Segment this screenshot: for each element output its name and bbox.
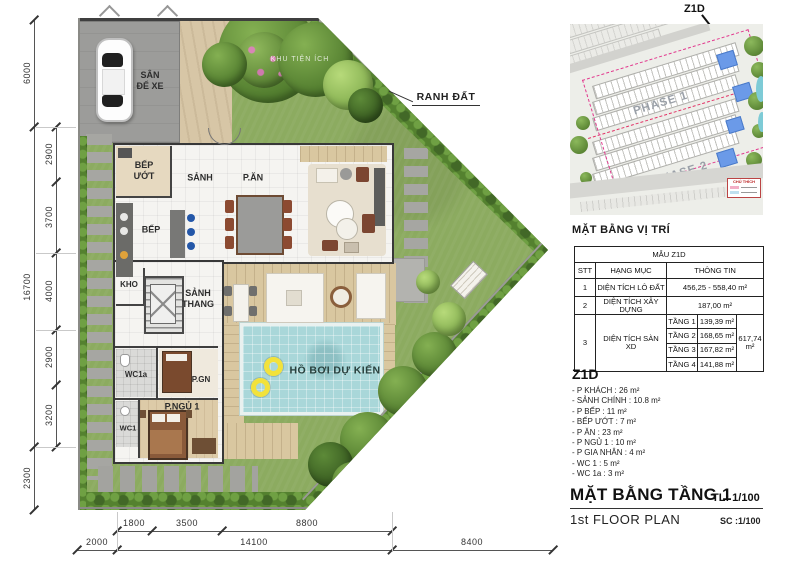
kitchen-label: BẾP	[142, 225, 161, 236]
dining-label: P.ĂN	[243, 173, 263, 184]
spec-table-header-row: STT HẠNG MỤC THÔNG TIN	[575, 262, 763, 278]
elevator-shaft	[150, 284, 176, 324]
tv-cabinet	[374, 168, 385, 226]
dim-extension	[36, 330, 76, 331]
title-divider	[570, 508, 763, 509]
wet-kitchen-label: BẾP ƯỚT	[134, 160, 155, 182]
dim-line-left-inner	[56, 127, 57, 447]
legend-item: - BẾP ƯỚT : 7 m²	[572, 417, 660, 427]
dim-line-left-outer	[34, 20, 35, 510]
lounge-chair	[362, 214, 375, 233]
tree	[432, 302, 466, 336]
dim-value: 2000	[86, 537, 108, 547]
dim-value: 8400	[461, 537, 483, 547]
toilet	[120, 354, 130, 367]
sofa	[316, 168, 338, 183]
dim-value: 16700	[22, 273, 32, 301]
car-roof	[102, 69, 125, 95]
legend-swatch-line	[741, 192, 757, 193]
spec-table-title: MẪU Z1D	[575, 247, 763, 262]
legend-item: - P BẾP : 11 m²	[572, 407, 660, 417]
pool-label: HỒ BƠI DỰ KIẾN	[290, 365, 381, 378]
boundary-label: RANH ĐẤT	[412, 91, 480, 106]
dim-value: 2900	[44, 346, 54, 368]
legend-item: - P KHÁCH : 26 m²	[572, 386, 660, 396]
maid-room-label: P.GN	[192, 375, 211, 385]
floor-label: TẦNG 1	[667, 315, 698, 328]
bed-pillow	[152, 414, 165, 422]
dining-chair	[225, 200, 234, 213]
tree	[332, 462, 372, 502]
pouf	[340, 168, 352, 180]
dim-extension	[36, 127, 76, 128]
dim-extension	[392, 512, 393, 552]
round-side-table	[330, 286, 352, 308]
floor-label: TẦNG 3	[667, 344, 698, 357]
kitchen-island	[170, 210, 185, 258]
sheet-scale-en: SC :1/100	[720, 516, 761, 526]
bed-pillow	[167, 414, 180, 422]
legend-item: - WC 1 : 5 m²	[572, 459, 660, 469]
spec-cell-info: 187,00 m²	[667, 297, 763, 314]
daybed-pillow	[286, 290, 302, 306]
kitchen-counter	[116, 203, 133, 277]
dim-line-bottom-inner	[117, 531, 392, 532]
west-fence	[78, 18, 80, 510]
legend-item: - P ĂN : 23 m²	[572, 428, 660, 438]
inset-tree	[576, 116, 590, 130]
living-room-north-deck	[300, 146, 387, 162]
inset-tree	[744, 36, 763, 56]
sheet-scale-vi: TL: 1/100	[712, 492, 760, 504]
dim-value: 4000	[44, 280, 54, 302]
stair-hall-label: SẢNH THANG	[182, 288, 214, 310]
sheet-title-en: 1st FLOOR PLAN	[570, 512, 680, 527]
inset-legend-title: CHÚ THÍCH	[728, 179, 760, 184]
spec-header-item: HẠNG MỤC	[596, 263, 667, 278]
bush	[416, 270, 440, 294]
spec-header-no: STT	[575, 263, 596, 278]
legend-swatch-pink	[730, 186, 739, 189]
spec-cell-item: DIỆN TÍCH LÔ ĐẤT	[596, 279, 667, 296]
outdoor-chair	[249, 286, 257, 296]
maid-bed	[162, 351, 192, 393]
wing-partition	[156, 348, 158, 398]
coffee-table-small	[336, 218, 358, 240]
floor-plan-sheet: SÂN ĐỂ XE HỒ BƠI DỰ KIẾN	[0, 0, 800, 565]
dim-line-bottom-outer	[77, 550, 553, 551]
garage-label: SÂN ĐỂ XE	[136, 70, 163, 92]
inset-callout-label: Z1D	[684, 3, 705, 15]
swim-ring	[251, 378, 270, 397]
dim-value: 2300	[22, 467, 32, 489]
tree	[378, 366, 428, 416]
legend-item: - P NGỦ 1 : 10 m²	[572, 438, 660, 448]
swimming-pool: HỒ BƠI DỰ KIẾN	[243, 326, 380, 412]
outdoor-chair	[249, 306, 257, 316]
dim-value: 3200	[44, 404, 54, 426]
dim-extension	[36, 253, 76, 254]
dim-value: 14100	[240, 537, 268, 547]
spec-row: 2 DIỆN TÍCH XÂY DỰNG 187,00 m²	[575, 296, 763, 314]
wc1a-label: WC1a	[125, 370, 147, 380]
washbasin	[120, 406, 130, 416]
spec-table: MẪU Z1D STT HẠNG MỤC THÔNG TIN 1 DIỆN TÍ…	[574, 246, 764, 372]
wing-partition	[115, 346, 218, 348]
spec-cell-info: 456,25 - 558,40 m²	[667, 279, 763, 296]
room-legend-title: Z1D	[572, 366, 660, 382]
floor-value: 167,82 m²	[698, 344, 737, 357]
wc1-label: WC1	[120, 424, 137, 433]
legend-item: - WC 1a : 3 m²	[572, 469, 660, 479]
hall-label: SẢNH	[187, 173, 213, 184]
spec-row-floors: 3 DIỆN TÍCH SÀN XD TẦNG 1 139,39 m² TẦNG…	[575, 314, 763, 371]
inset-caption: MẶT BẰNG VỊ TRÍ	[572, 224, 670, 236]
dining-chair	[283, 218, 292, 231]
car	[96, 38, 133, 122]
bar-stool	[187, 242, 195, 250]
outdoor-dining-table	[233, 284, 249, 322]
wet-kitchen-counter	[118, 148, 132, 158]
maid-bed-pillow	[166, 354, 187, 361]
bar-stool	[187, 228, 195, 236]
legend-item: - SẢNH CHÍNH : 10.8 m²	[572, 396, 660, 406]
dim-value: 6000	[22, 62, 32, 84]
dim-extension	[36, 447, 76, 448]
inset-tree	[570, 136, 588, 154]
side-table	[344, 242, 359, 253]
inset-legend-box: CHÚ THÍCH	[727, 178, 761, 198]
dim-value: 8800	[296, 518, 318, 528]
sheet-title-vi: MẶT BẰNG TẦNG 1	[570, 485, 732, 505]
floor-label: TẦNG 4	[667, 358, 698, 371]
side-stepping-path	[86, 134, 112, 480]
bed-blanket	[150, 430, 182, 454]
stair-core	[144, 276, 184, 334]
amenity-label: KHU TIỆN ÍCH	[271, 56, 330, 64]
tree	[348, 88, 383, 123]
floor-value: 139,39 m²	[698, 315, 737, 328]
outdoor-chair	[224, 286, 232, 296]
nightstand	[140, 410, 146, 418]
floor-label: TẦNG 2	[667, 329, 698, 342]
tree	[412, 332, 457, 377]
kitchen-sink	[120, 213, 128, 221]
spec-header-info: THÔNG TIN	[667, 263, 763, 278]
spec-cell-item: DIỆN TÍCH XÂY DỰNG	[596, 297, 667, 314]
swim-ring	[264, 357, 283, 376]
spec-cell-item: DIỆN TÍCH SÀN XD	[596, 315, 667, 371]
outdoor-chair	[224, 306, 232, 316]
dining-chair	[225, 236, 234, 249]
spec-total-area: 617,74 m²	[737, 315, 763, 371]
tree	[202, 42, 247, 87]
dining-table	[236, 195, 284, 255]
legend-swatch-line	[741, 187, 757, 188]
car-windshield	[102, 53, 123, 67]
spec-cell-no: 3	[575, 315, 596, 371]
bar-stool	[187, 214, 195, 222]
storage-label: KHO	[120, 280, 138, 290]
site-location-inset: PHASE 1 PHASE 2 CHÚ THÍCH	[570, 24, 763, 215]
dim-value: 2900	[44, 143, 54, 165]
spec-cell-no: 1	[575, 279, 596, 296]
garden-bench	[450, 261, 488, 300]
dim-value: 3700	[44, 206, 54, 228]
lounge-bed	[356, 273, 386, 319]
legend-item: - P GIA NHÂN : 4 m²	[572, 448, 660, 458]
bench-seat	[322, 240, 338, 251]
car-rear-window	[102, 95, 123, 107]
dining-chair	[283, 236, 292, 249]
bedroom1-label: P.NGỦ 1	[165, 402, 200, 413]
dim-extension	[117, 512, 118, 552]
dining-chair	[283, 200, 292, 213]
room-legend: Z1D - P KHÁCH : 26 m² - SẢNH CHÍNH : 10.…	[572, 366, 660, 480]
spec-row: 1 DIỆN TÍCH LÔ ĐẤT 456,25 - 558,40 m²	[575, 278, 763, 296]
spec-cell-no: 2	[575, 297, 596, 314]
legend-swatch-blue	[730, 191, 739, 194]
pool-south-deck	[218, 423, 298, 459]
floor-value: 141,88 m²	[698, 358, 737, 371]
south-fence	[78, 507, 307, 509]
floor-value: 168,65 m²	[698, 329, 737, 342]
kitchen-sink	[120, 227, 128, 235]
dining-chair	[225, 218, 234, 231]
armchair	[356, 167, 369, 182]
stove-burner	[120, 251, 128, 259]
inset-water	[758, 112, 763, 132]
dim-value: 1800	[123, 518, 145, 528]
inset-water	[756, 76, 763, 102]
wardrobe	[192, 438, 216, 454]
bed-double	[148, 410, 188, 460]
rear-paver-strip	[98, 466, 258, 492]
dim-value: 3500	[176, 518, 198, 528]
